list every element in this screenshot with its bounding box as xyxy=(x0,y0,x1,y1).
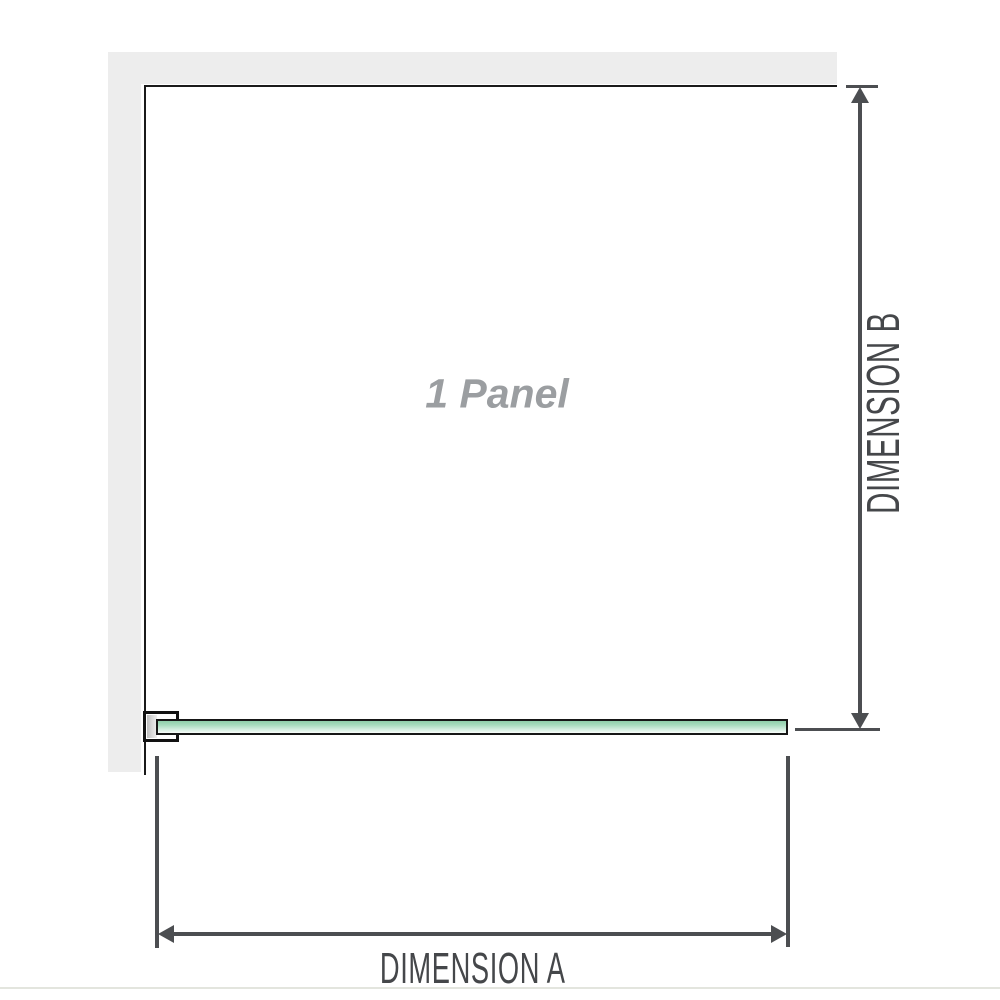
wall-left xyxy=(108,52,141,772)
arrow-left-icon xyxy=(158,925,174,943)
dimension-a-label: DIMENSION A xyxy=(157,944,788,994)
glass-panel-plan-view xyxy=(156,719,788,735)
dimension-a-label-text: DIMENSION A xyxy=(380,944,566,994)
panel-count-label: 1 Panel xyxy=(425,371,569,418)
dimension-b-label: DIMENSION B xyxy=(856,255,910,570)
arrow-down-icon xyxy=(851,713,869,729)
panel-front-outline xyxy=(144,85,837,775)
arrow-up-icon xyxy=(851,87,869,103)
dimension-a-line xyxy=(170,932,775,936)
dimension-b-label-text: DIMENSION B xyxy=(856,312,910,514)
dimension-a-extension-right xyxy=(786,756,790,947)
wall-top xyxy=(108,52,837,84)
arrow-right-icon xyxy=(771,925,787,943)
dimension-a-extension-left xyxy=(155,756,159,948)
shower-screen-diagram: 1 Panel DIMENSION B DIMENSION A xyxy=(0,0,1000,1000)
